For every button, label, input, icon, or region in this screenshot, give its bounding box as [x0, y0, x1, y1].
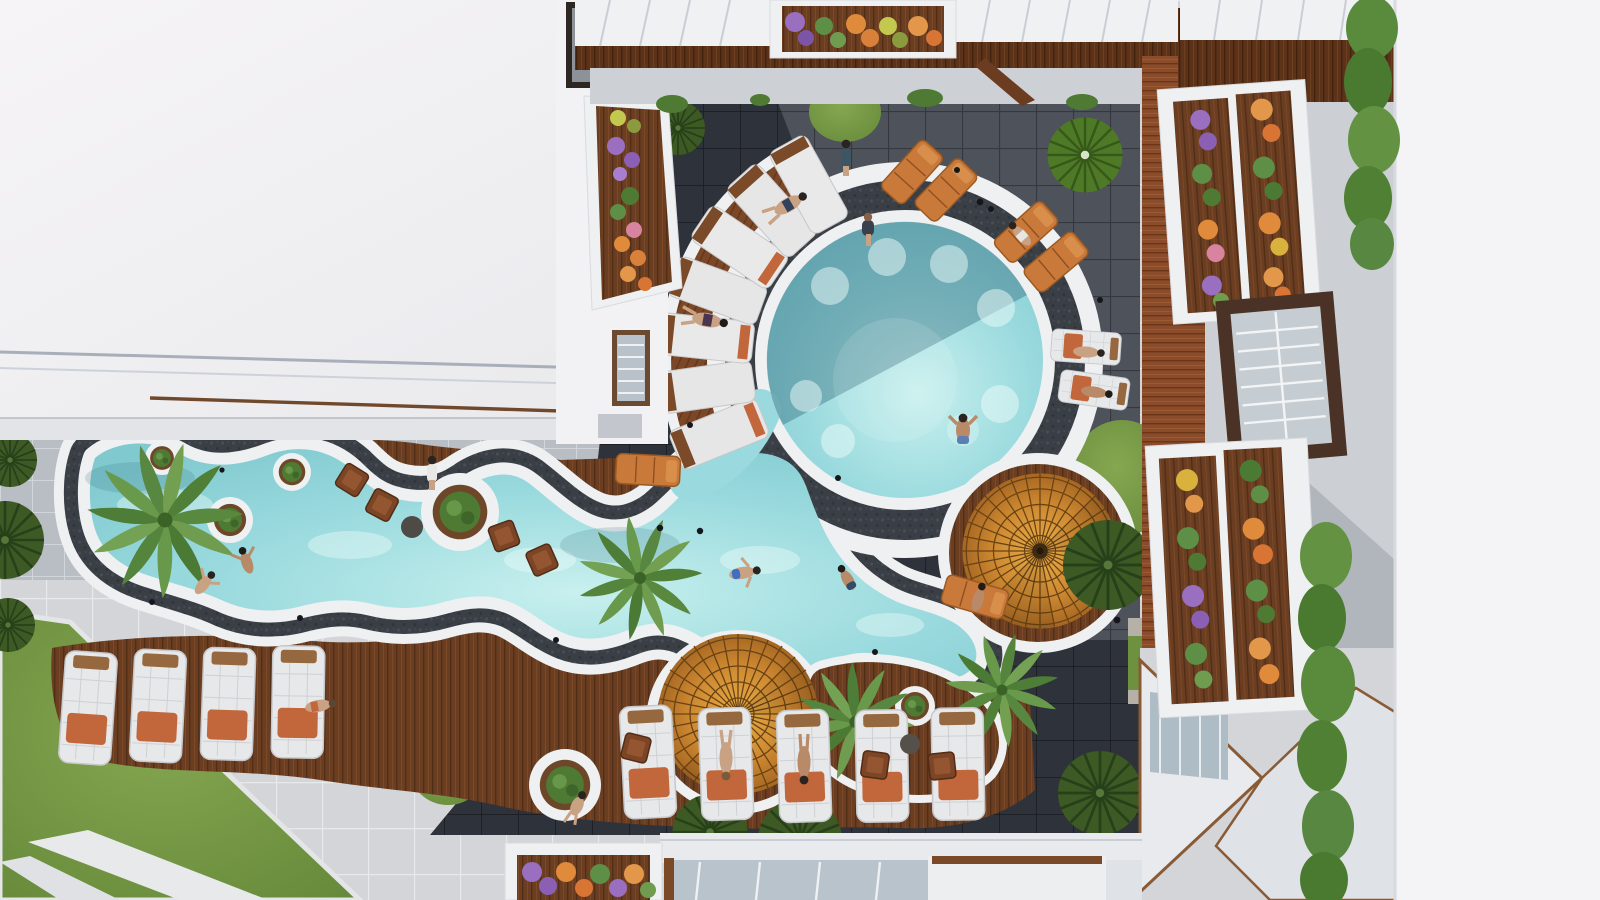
roof-wood-post — [664, 858, 674, 900]
right-side — [1140, 0, 1600, 900]
wood-chair — [860, 750, 889, 779]
wood-chair — [620, 732, 652, 764]
orange-lounger-deck — [615, 453, 680, 486]
top-strip — [575, 0, 1180, 113]
bottom-skylight-glass — [668, 860, 928, 900]
right-building-wall — [1395, 0, 1600, 900]
white-lounger — [58, 650, 118, 765]
aerial-resort-pool-photo — [0, 0, 1600, 900]
right-balcony-upper — [1157, 79, 1321, 324]
radial-bush — [1058, 751, 1142, 835]
left-building-roof — [0, 0, 592, 440]
right-balcony-lower — [1145, 438, 1321, 718]
scene-canvas — [0, 0, 1600, 900]
round-table — [900, 734, 920, 754]
facade-vent — [598, 414, 642, 438]
white-lounger — [619, 705, 677, 820]
person-swimming-pool — [947, 414, 979, 446]
radial-bush — [1048, 118, 1123, 193]
roof-lower-ledge — [0, 418, 560, 440]
bottom-rooflines — [505, 833, 1142, 900]
radial-bush — [1063, 520, 1153, 610]
round-table — [401, 516, 423, 538]
ring-planter-pavement — [273, 453, 311, 491]
wood-chair — [928, 752, 957, 781]
ring-planter-lawn — [529, 749, 601, 821]
white-lounger — [200, 647, 256, 761]
white-lounger — [129, 649, 187, 764]
